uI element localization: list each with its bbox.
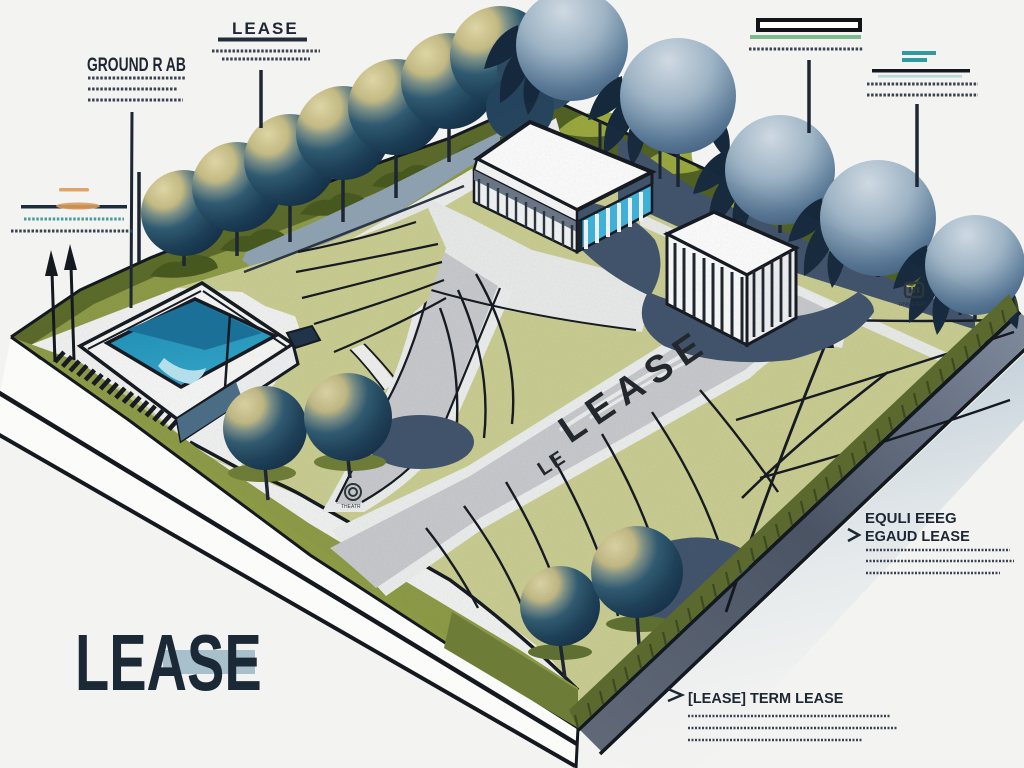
svg-text:GROUND R AB: GROUND R AB bbox=[87, 54, 186, 76]
svg-text:EGAUD LEASE: EGAUD LEASE bbox=[865, 529, 970, 545]
svg-text:EQULI EEEG: EQULI EEEG bbox=[865, 510, 957, 527]
svg-text:LEASE: LEASE bbox=[232, 19, 299, 38]
svg-text:LEASE: LEASE bbox=[75, 617, 262, 707]
svg-text:[LEASE] TERM LEASE: [LEASE] TERM LEASE bbox=[688, 691, 844, 707]
